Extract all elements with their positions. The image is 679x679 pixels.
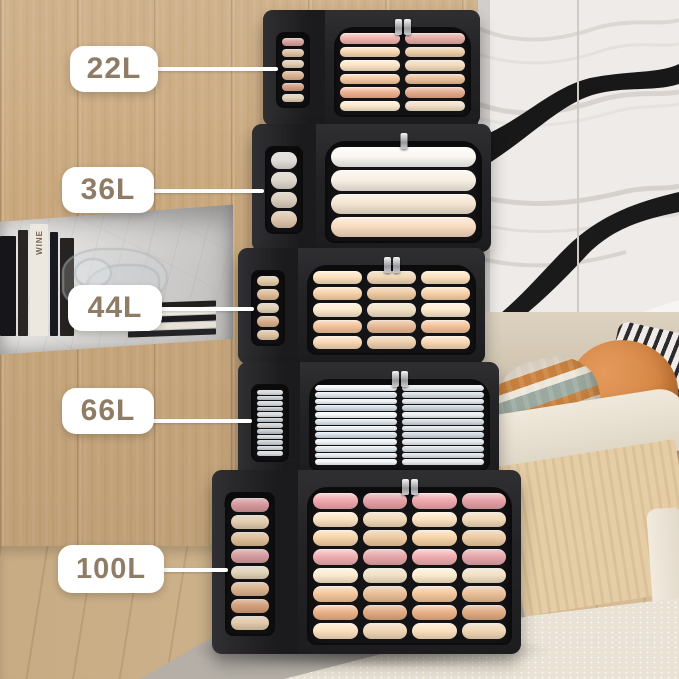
clothes-roll [313,320,362,333]
clothes-roll [231,515,269,529]
box-side-face [252,124,316,252]
clothes-roll [367,303,416,316]
clothes-roll [282,83,304,91]
clothes-roll [402,419,484,425]
clothes-roll [231,549,269,563]
clothes-roll [462,568,507,584]
storage-box-100l [212,470,521,654]
clothes-roll [315,446,397,452]
wave-panel-graphic [478,0,679,335]
clothes-roll [313,605,358,621]
clothes-roll [412,493,457,509]
clothes-roll [331,170,476,190]
box-front-face [298,248,485,364]
folded-clothes [331,147,476,237]
clothes-roll [402,405,484,411]
front-window [307,487,512,645]
clothes-roll [315,392,397,398]
clothes-roll [257,429,283,434]
clothes-roll [271,192,297,209]
clothes-roll [282,71,304,79]
zipper-pull-icon [400,133,407,149]
clothes-roll [313,568,358,584]
storage-box-66l [238,362,499,480]
front-window [307,265,476,355]
clothes-roll [462,586,507,602]
clothes-roll [313,493,358,509]
clothes-roll [257,407,283,412]
folded-clothes [231,498,269,630]
clothes-roll [402,453,484,459]
clothes-roll [363,493,408,509]
clothes-roll [340,60,400,71]
clothes-roll [462,512,507,528]
zipper-pull-icon [402,479,418,495]
connector-line-100l [162,568,228,572]
box-front-face [316,124,491,252]
clothes-roll [231,498,269,512]
clothes-roll [412,623,457,639]
clothes-roll [363,530,408,546]
book-spine [18,230,28,336]
clothes-roll [257,412,283,417]
marble-shelf-niche: WINE [0,200,233,356]
clothes-roll [257,423,283,428]
clothes-roll [257,451,283,456]
clothes-roll [282,94,304,102]
clothes-roll [315,432,397,438]
clothes-roll [257,316,279,326]
capacity-text: 44L [88,291,143,325]
clothes-roll [231,532,269,546]
clothes-roll [421,271,470,284]
clothes-roll [257,330,279,340]
box-side-face [212,470,298,654]
clothes-roll [315,385,397,391]
clothes-roll [340,101,400,112]
clothes-roll [231,599,269,613]
clothes-roll [282,38,304,46]
clothes-roll [313,586,358,602]
clothes-roll [313,512,358,528]
clothes-roll [412,530,457,546]
clothes-roll [315,419,397,425]
clothes-roll [402,439,484,445]
clothes-roll [405,101,465,112]
clothes-roll [367,336,416,349]
clothes-roll [271,211,297,228]
box-front-face [298,470,521,654]
clothes-roll [331,194,476,214]
front-window [309,379,490,471]
clothes-roll [313,271,362,284]
capacity-label-44l: 44L [68,285,162,331]
clothes-roll [412,568,457,584]
clothes-roll [421,336,470,349]
side-window [225,492,275,636]
clothes-roll [402,412,484,418]
clothes-roll [315,459,397,465]
clothes-roll [363,623,408,639]
front-window [325,141,482,243]
clothes-roll [257,396,283,401]
clothes-roll [367,287,416,300]
clothes-roll [231,582,269,596]
clothes-roll [313,336,362,349]
clothes-roll [405,47,465,58]
clothes-roll [257,303,279,313]
clothes-roll [412,586,457,602]
folded-clothes [340,33,465,111]
clothes-roll [282,60,304,68]
clothes-roll [313,623,358,639]
clothes-roll [363,605,408,621]
clothes-roll [257,289,279,299]
storage-box-44l [238,248,485,364]
capacity-label-100l: 100L [58,545,164,593]
clothes-roll [412,549,457,565]
box-front-face [325,10,480,126]
clothes-roll [363,512,408,528]
clothes-roll [282,49,304,57]
clothes-roll [315,453,397,459]
folded-clothes [257,276,279,340]
folded-clothes [313,271,470,349]
clothes-roll [257,276,279,286]
folded-clothes [271,152,297,228]
connector-line-66l [152,419,252,423]
clothes-roll [313,549,358,565]
clothes-roll [402,385,484,391]
storage-box-36l [252,124,491,252]
capacity-text: 100L [76,553,146,586]
storage-box-22l [263,10,480,126]
clothes-roll [313,303,362,316]
folded-clothes [313,493,506,639]
connector-line-44l [160,307,254,311]
clothes-roll [231,616,269,630]
clothes-roll [257,446,283,451]
clothes-roll [231,566,269,580]
capacity-label-36l: 36L [62,167,154,213]
capacity-text: 22L [87,52,142,86]
capacity-text: 36L [81,173,136,207]
clothes-roll [402,446,484,452]
clothes-roll [405,74,465,85]
clothes-roll [271,172,297,189]
clothes-roll [367,320,416,333]
clothes-roll [402,432,484,438]
clothes-roll [340,74,400,85]
capacity-text: 66L [81,394,136,428]
clothes-roll [421,287,470,300]
clothes-roll [313,287,362,300]
clothes-roll [402,399,484,405]
clothes-roll [462,493,507,509]
clothes-roll [257,435,283,440]
folded-clothes [257,390,283,456]
book-spine-title: WINE [35,230,44,255]
clothes-roll [402,426,484,432]
clothes-roll [405,33,465,44]
book-spine: WINE [30,224,48,336]
capacity-label-22l: 22L [70,46,158,92]
clothes-roll [331,147,476,167]
folded-clothes [315,385,484,465]
zipper-pull-icon [395,19,411,35]
box-front-face [300,362,499,480]
clothes-roll [363,549,408,565]
clothes-roll [257,440,283,445]
connector-line-22l [156,67,278,71]
side-window [251,384,289,462]
side-window [251,270,285,346]
zipper-pull-icon [384,257,400,273]
clothes-roll [405,60,465,71]
product-photo: WINE [0,0,679,679]
clothes-roll [315,405,397,411]
clothes-roll [405,87,465,98]
sculpted-wave-wall-panel [478,0,679,335]
clothes-roll [462,605,507,621]
clothes-roll [271,152,297,169]
clothes-roll [421,303,470,316]
clothes-roll [462,549,507,565]
clothes-roll [315,399,397,405]
clothes-roll [313,530,358,546]
clothes-roll [340,47,400,58]
glass-sculpture [74,258,112,288]
clothes-roll [462,530,507,546]
clothes-roll [363,586,408,602]
clothes-roll [331,217,476,237]
book-spine [0,236,16,336]
clothes-roll [412,512,457,528]
clothes-roll [315,426,397,432]
capacity-label-66l: 66L [62,388,154,434]
front-window [334,27,471,117]
book-spine [50,232,58,336]
clothes-roll [257,418,283,423]
side-window [276,32,310,108]
clothes-roll [402,459,484,465]
clothes-roll [315,439,397,445]
connector-line-36l [152,189,264,193]
clothes-roll [412,605,457,621]
clothes-roll [462,623,507,639]
box-side-face [238,248,298,364]
clothes-roll [340,33,400,44]
clothes-roll [315,412,397,418]
clothes-roll [363,568,408,584]
folded-clothes [282,38,304,102]
clothes-roll [421,320,470,333]
clothes-roll [257,401,283,406]
clothes-roll [402,392,484,398]
clothes-roll [257,390,283,395]
clothes-roll [340,87,400,98]
side-window [265,146,303,234]
zipper-pull-icon [392,371,408,387]
